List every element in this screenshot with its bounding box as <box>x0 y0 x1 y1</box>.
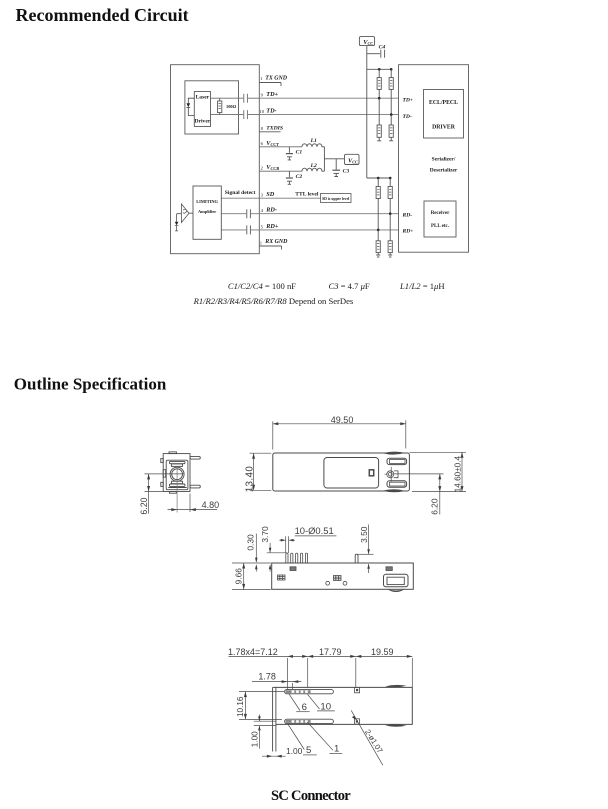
svg-text:ECL/PECL: ECL/PECL <box>429 100 458 106</box>
svg-text:Recommended Circuit: Recommended Circuit <box>16 5 189 25</box>
svg-text:SC Connector: SC Connector <box>271 788 351 804</box>
svg-text:3.70: 3.70 <box>260 526 270 543</box>
svg-text:3.50: 3.50 <box>359 526 369 543</box>
svg-text:9.66: 9.66 <box>234 568 244 585</box>
svg-text:TXDIS: TXDIS <box>266 126 283 132</box>
svg-text:6.20: 6.20 <box>139 497 149 514</box>
svg-text:10: 10 <box>259 109 264 114</box>
svg-text:100Ω: 100Ω <box>226 104 237 109</box>
svg-text:DRIVER: DRIVER <box>432 125 456 131</box>
svg-text:C4: C4 <box>379 45 386 51</box>
svg-text:Serializer/: Serializer/ <box>432 157 456 163</box>
svg-text:TX GND: TX GND <box>265 76 288 82</box>
svg-text:TD+: TD+ <box>403 98 414 104</box>
svg-text:C3: C3 <box>343 169 350 175</box>
svg-text:19.59: 19.59 <box>371 647 394 657</box>
svg-text:0.30: 0.30 <box>246 534 256 551</box>
svg-text:TD+: TD+ <box>266 91 278 98</box>
svg-text:PLL etc.: PLL etc. <box>431 224 450 229</box>
svg-text:1.78x4=7.12: 1.78x4=7.12 <box>228 647 278 657</box>
svg-text:49.50: 49.50 <box>331 415 354 425</box>
svg-text:6: 6 <box>302 702 307 713</box>
svg-text:13.40: 13.40 <box>244 466 255 493</box>
svg-text:VCCR: VCCR <box>266 164 279 171</box>
svg-text:L1/L2 = 1μH: L1/L2 = 1μH <box>399 281 445 291</box>
svg-text:Signal detect: Signal detect <box>225 190 256 196</box>
svg-text:L1: L1 <box>310 138 317 144</box>
svg-text:RD+: RD+ <box>402 229 414 235</box>
svg-text:C1/C2/C4 = 100 nF: C1/C2/C4 = 100 nF <box>228 281 296 291</box>
svg-text:Outline Specification: Outline Specification <box>14 375 167 394</box>
svg-text:C2: C2 <box>296 174 303 180</box>
svg-text:RX GND: RX GND <box>264 239 288 245</box>
svg-text:Laser: Laser <box>196 95 210 101</box>
svg-text:R1/R2/R3/R4/R5/R6/R7/R8 Depen: R1/R2/R3/R4/R5/R6/R7/R8 Depend on SerDes <box>193 296 354 306</box>
svg-text:SD is upper level: SD is upper level <box>322 197 349 201</box>
svg-text:Receiver: Receiver <box>431 211 450 216</box>
svg-text:1.00: 1.00 <box>250 731 259 747</box>
svg-text:LIMITING: LIMITING <box>196 199 218 204</box>
svg-text:C1: C1 <box>296 149 303 155</box>
svg-text:5: 5 <box>306 745 311 756</box>
svg-text:RD+: RD+ <box>265 223 279 230</box>
svg-text:C3 = 4.7 μF: C3 = 4.7 μF <box>329 281 370 291</box>
svg-text:Amplifier: Amplifier <box>198 209 216 214</box>
svg-text:14.60±0.4: 14.60±0.4 <box>453 455 462 492</box>
svg-text:6.20: 6.20 <box>430 498 440 515</box>
svg-text:L2: L2 <box>310 163 317 169</box>
svg-text:17.79: 17.79 <box>319 647 342 657</box>
svg-text:RD-: RD- <box>402 213 413 219</box>
svg-text:1.00: 1.00 <box>286 746 303 756</box>
svg-text:TD-: TD- <box>403 114 412 120</box>
svg-text:10.16: 10.16 <box>236 696 245 717</box>
svg-text:RD-: RD- <box>265 207 277 214</box>
svg-text:4.80: 4.80 <box>202 500 220 510</box>
svg-text:10-Ø0.51: 10-Ø0.51 <box>295 525 334 536</box>
svg-text:TD-: TD- <box>266 108 276 115</box>
svg-text:TTL level: TTL level <box>295 191 319 197</box>
svg-text:SD: SD <box>266 191 274 198</box>
svg-text:1.78: 1.78 <box>258 671 276 681</box>
svg-text:Driver: Driver <box>194 119 210 125</box>
svg-text:VCCT: VCCT <box>266 140 279 147</box>
svg-text:1: 1 <box>334 744 339 755</box>
svg-text:Deserializer: Deserializer <box>430 168 458 174</box>
